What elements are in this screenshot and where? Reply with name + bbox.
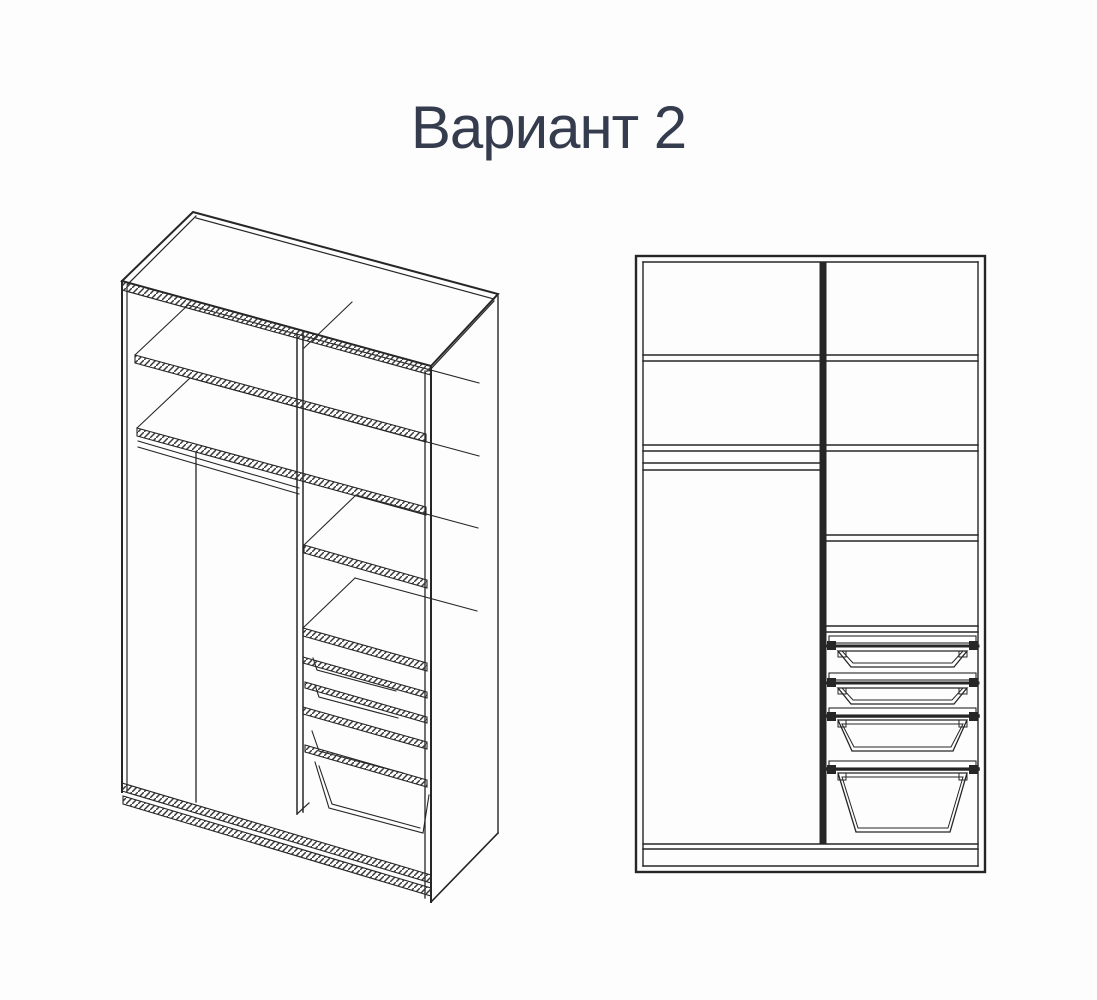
deep-basket-tub	[838, 773, 967, 832]
center-divider	[820, 262, 827, 844]
shallow-basket-tub-rim	[842, 651, 963, 663]
top-panel-left-inner-edge	[127, 216, 196, 285]
plinth-front-band	[123, 796, 431, 896]
shelf-a-front-band	[135, 355, 426, 442]
deep-basket-tub-rim	[842, 724, 963, 747]
basket-slide-frame	[829, 673, 976, 680]
rail-bracket	[969, 712, 978, 721]
wardrobe-diagram	[0, 0, 1097, 1000]
right-panel-bottom-edge	[431, 833, 498, 902]
deep-basket-tub-rim	[842, 777, 963, 828]
rail-bracket	[969, 641, 978, 650]
shelf-b-left-edge	[137, 378, 190, 428]
front-elevation-view	[636, 256, 985, 872]
deep-basket-tub	[838, 720, 967, 751]
rail-bracket	[969, 765, 978, 774]
shelf-c-front-band	[304, 545, 427, 588]
cabinet-outer-frame	[636, 256, 985, 872]
shelf-d-left-edge	[303, 578, 355, 628]
rail-bracket	[827, 712, 836, 721]
rail-bracket	[827, 678, 836, 687]
bottom-shelf-front-band	[122, 783, 431, 883]
rail-bracket	[827, 641, 836, 650]
isometric-view	[122, 212, 498, 902]
shallow-basket-tub	[838, 688, 967, 704]
top-panel-back-inner-edge	[196, 218, 494, 299]
basket-slide-frame	[829, 761, 976, 768]
rail-bracket	[827, 765, 836, 774]
shallow-basket-tub	[838, 651, 967, 667]
shelf-c-left-edge	[304, 495, 356, 545]
shelf-a-left-edge	[135, 305, 188, 355]
top-panel-right-inner-edge	[429, 301, 494, 371]
shallow-basket-tub-rim	[842, 688, 963, 700]
hanging-rod-top-line	[138, 441, 299, 488]
basket-slide-frame	[829, 636, 976, 643]
basket-slide-frame	[829, 708, 976, 715]
shelf-b-front-band	[137, 428, 426, 515]
deep-basket-tub	[315, 762, 429, 833]
basket-rail-band	[305, 745, 427, 787]
top-panel-front-band	[122, 281, 431, 375]
rail-bracket	[969, 678, 978, 687]
